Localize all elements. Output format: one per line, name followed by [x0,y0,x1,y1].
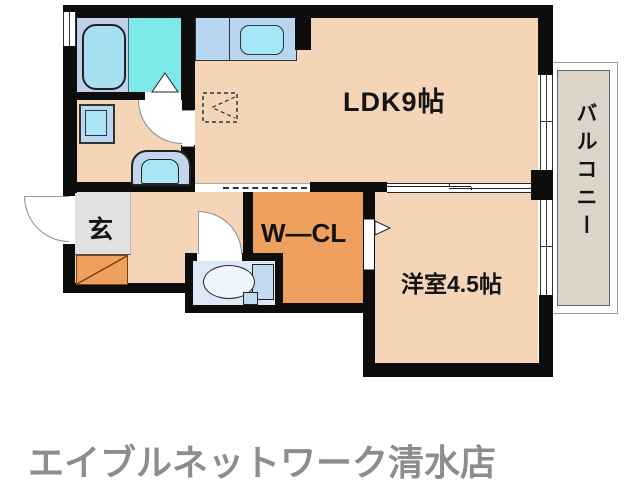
wall-ldk-bottom-mid [310,182,387,192]
wall-top [63,5,553,18]
sliding-door-ldk-western [387,183,531,193]
window-western [540,200,553,295]
western-door-icon [374,219,393,237]
western-door-opening [364,219,374,270]
washroom-door-opening [182,110,194,147]
bathroom-door-opening [145,92,181,100]
window-ldk [540,75,553,170]
washbasin-icon [79,104,115,144]
ldk-label: LDK9帖 [343,80,446,119]
kitchen-sink [240,25,284,55]
wall-right-seg2 [531,170,553,200]
balcony-label: バルコニー [570,102,600,242]
bathtub-icon [82,24,126,90]
refrigerator-space-icon [201,90,241,126]
wall-western-left [363,192,375,363]
entrance-label: 玄 [88,210,113,246]
window-bathroom [63,12,76,46]
toilet-seat-joint [243,292,258,305]
entry-door-swing [24,196,69,242]
wall-kitchen-stub [295,18,311,50]
bathroom-folding-door-icon [150,72,181,93]
wall-closet-bottom [283,303,375,313]
wall-bath-kitchen-upper [181,18,195,110]
closet-label: W—CL [261,218,346,249]
western-room-label: 洋室4.5帖 [401,265,502,299]
store-name: エイブルネットワーク清水店 [28,434,496,486]
wall-bottom-western [363,363,553,377]
wall-right-seg1 [538,5,553,75]
wall-bathroom-bottom [63,92,145,100]
wall-hall-closet [243,192,253,253]
floor-plan-page: { "floorplan": { "rooms": { "ldk": "LDK9… [0,0,640,480]
ldk-hall-open-passage [195,183,310,192]
vanity-icon [131,150,191,186]
shoe-cabinet-icon [76,255,128,285]
toilet-door-opening [197,253,242,261]
